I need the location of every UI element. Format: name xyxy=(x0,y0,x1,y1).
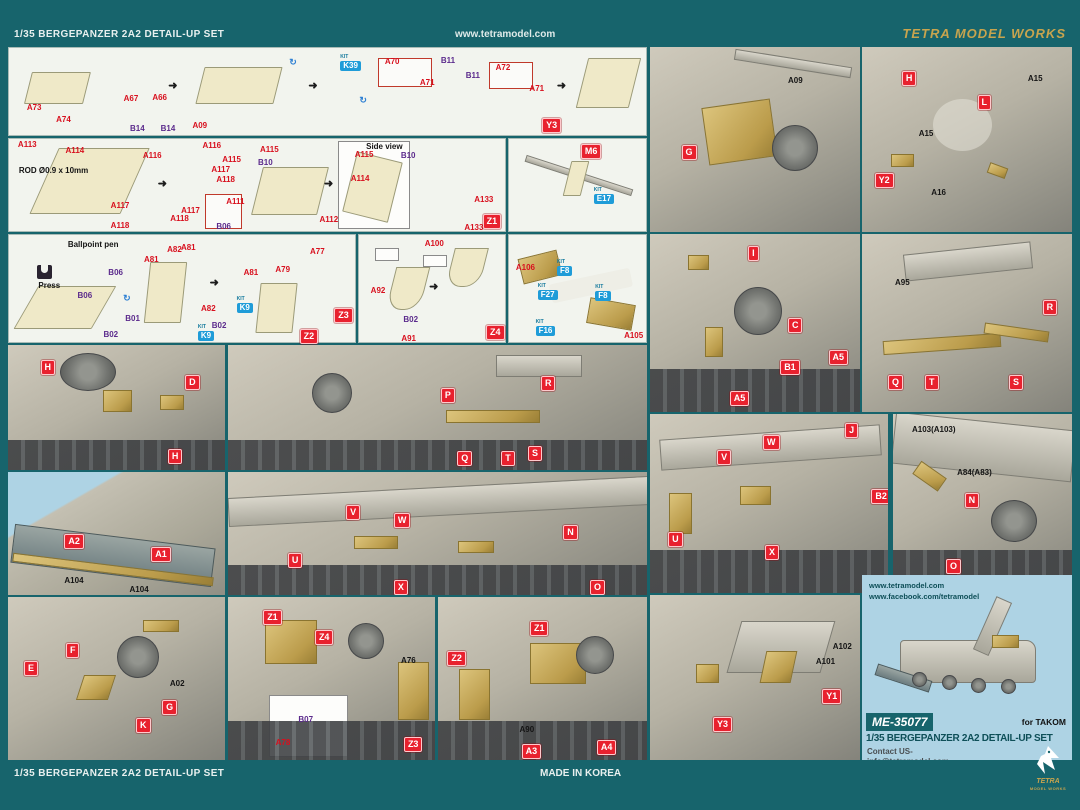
part-label-a82: A82 xyxy=(201,305,216,313)
diagram-inset-box xyxy=(375,248,399,261)
facebook-url: www.facebook.com/tetramodel xyxy=(869,591,979,602)
part-label-n: N xyxy=(563,525,578,540)
part-label-b11: B11 xyxy=(466,72,480,80)
part-label-a91: A91 xyxy=(401,335,416,343)
part-label-a71: A71 xyxy=(420,79,435,87)
etch-part-art xyxy=(354,536,398,549)
note-ballpoint-pen: Ballpoint pen xyxy=(68,241,119,249)
photo-rear-deck-brackets: A95RQTS xyxy=(862,234,1072,412)
part-label-a09: A09 xyxy=(788,77,803,85)
footer-bar: 1/35 BERGEPANZER 2A2 DETAIL-UP SET MADE … xyxy=(0,760,1080,810)
part-label-r: R xyxy=(541,376,556,391)
made-in-korea-label: MADE IN KOREA xyxy=(540,768,621,779)
part-label-a09: A09 xyxy=(192,122,207,130)
part-label-s: S xyxy=(528,446,542,461)
part-label-x: X xyxy=(765,545,779,560)
etch-part-art xyxy=(740,486,771,506)
part-label-z2: Z2 xyxy=(447,651,466,666)
etch-panel-art xyxy=(265,620,317,664)
part-label-g: G xyxy=(162,700,177,715)
part-label-a100: A100 xyxy=(425,240,444,248)
part-label-k: K xyxy=(136,718,151,733)
part-label-c: C xyxy=(788,318,803,333)
part-label-z3: Z3 xyxy=(404,737,423,752)
part-label-a117: A117 xyxy=(111,202,130,210)
part-label-a2: A2 xyxy=(64,534,84,549)
etch-part-art xyxy=(705,327,724,357)
for-takom-label: for TAKOM xyxy=(1022,717,1066,727)
part-label-y3: Y3 xyxy=(542,118,561,133)
kit-tag: KIT xyxy=(536,320,544,325)
part-label-u: U xyxy=(288,553,303,568)
part-label-a113: A113 xyxy=(18,141,37,149)
model-etch-art xyxy=(992,635,1019,648)
logo-subtext: MODEL WORKS xyxy=(1024,786,1072,791)
part-label-a3: A3 xyxy=(522,744,542,759)
crane-arm-art xyxy=(228,476,647,527)
part-label-k9: K9KIT xyxy=(198,331,214,341)
model-wheel-art xyxy=(942,675,957,690)
etch-fret-art xyxy=(587,298,637,331)
part-label-y2: Y2 xyxy=(875,173,894,188)
part-label-h: H xyxy=(902,71,917,86)
part-label-a76: A76 xyxy=(401,657,416,665)
part-label-z4: Z4 xyxy=(486,325,505,340)
photo-hull-top-detail: HLA15A15Y2A16 xyxy=(862,47,1072,232)
part-label-h: H xyxy=(41,360,56,375)
part-label-a81: A81 xyxy=(244,269,259,277)
part-label-n: N xyxy=(965,493,980,508)
kit-tag: KIT xyxy=(237,297,245,302)
photo-arm-scale-detail: A103(A103)A84(A83)NO xyxy=(893,414,1072,593)
part-label-o: O xyxy=(590,580,605,595)
part-label-b02: B02 xyxy=(103,331,118,339)
part-label-a84-a83: A84(A83) xyxy=(957,469,992,477)
part-label-w: W xyxy=(394,513,411,528)
kit-tag: KIT xyxy=(340,55,348,60)
part-label-a5: A5 xyxy=(730,391,750,406)
etch-part-art xyxy=(143,620,180,632)
footer-product-title: 1/35 BERGEPANZER 2A2 DETAIL-UP SET xyxy=(14,768,224,779)
part-label-a101: A101 xyxy=(816,658,835,666)
part-label-e17: E17KIT xyxy=(594,194,614,204)
part-label-k39: K39KIT xyxy=(340,61,361,71)
etch-box-art xyxy=(760,651,798,683)
part-label-a95: A95 xyxy=(895,279,910,287)
part-label-a02: A02 xyxy=(170,680,185,688)
part-label-p: P xyxy=(441,388,455,403)
part-label-r: R xyxy=(1043,300,1058,315)
etch-panel-art xyxy=(398,662,429,719)
instruction-sheet: 1/35 BERGEPANZER 2A2 DETAIL-UP SET www.t… xyxy=(0,0,1080,810)
diagram-part-art xyxy=(251,167,329,215)
part-label-q: Q xyxy=(888,375,903,390)
model-wheel-art xyxy=(971,678,986,693)
part-label-a71: A71 xyxy=(529,85,544,93)
part-label-a1: A1 xyxy=(151,547,171,562)
part-label-a114: A114 xyxy=(351,175,370,183)
part-label-a103-a103: A103(A103) xyxy=(912,426,956,434)
part-label-y1: Y1 xyxy=(822,689,841,704)
bend-arrow-icon: ↻ xyxy=(123,294,131,303)
part-label-b10: B10 xyxy=(258,159,273,167)
note-rod-0-9-x-10mm: ROD Ø0.9 x 10mm xyxy=(19,167,88,175)
diagram-step-ballpoint-press: ➜ ↻ Ballpoint penPressB06B06B01B02A81A82… xyxy=(8,234,356,343)
info-urls: www.tetramodel.com www.facebook.com/tetr… xyxy=(869,580,979,603)
diagram-part-art xyxy=(576,58,641,108)
etch-part-art xyxy=(987,163,1009,180)
part-label-a118: A118 xyxy=(111,222,130,230)
part-label-x: X xyxy=(394,580,408,595)
diagram-step-a92-bracket: ➜ A100A92B02A91Z4 xyxy=(358,234,506,343)
etch-part-art xyxy=(696,664,719,683)
step-arrow: ➜ xyxy=(158,179,167,190)
part-label-u: U xyxy=(668,532,683,547)
part-label-q: Q xyxy=(457,451,472,466)
step-arrow: ➜ xyxy=(324,179,333,190)
part-label-t: T xyxy=(501,451,515,466)
product-title: 1/35 BERGEPANZER 2A2 DETAIL-UP SET xyxy=(866,733,1053,744)
part-label-z1: Z1 xyxy=(263,610,282,625)
part-label-a79: A79 xyxy=(275,266,290,274)
kit-tag: KIT xyxy=(595,285,603,290)
part-label-b14: B14 xyxy=(130,125,145,133)
part-label-t: T xyxy=(925,375,939,390)
part-label-a111: A111 xyxy=(226,198,244,206)
deck-art xyxy=(496,355,582,377)
part-label-a102: A102 xyxy=(833,643,852,651)
product-info-panel: www.tetramodel.com www.facebook.com/tetr… xyxy=(862,575,1072,760)
photo-front-hull: HDH xyxy=(8,345,225,470)
part-label-a90: A90 xyxy=(520,726,535,734)
rail-art xyxy=(734,49,852,78)
model-wheel-art xyxy=(1001,679,1016,694)
part-label-b07: B07 xyxy=(298,716,313,724)
part-label-k9: K9KIT xyxy=(237,303,253,313)
photo-stowage-box: Y3Y1A102A101 xyxy=(650,595,860,760)
part-label-a66: A66 xyxy=(152,94,167,102)
step-arrow: ➜ xyxy=(308,81,317,92)
press-icon xyxy=(37,265,52,279)
part-label-z2: Z2 xyxy=(300,329,319,344)
step-arrow: ➜ xyxy=(429,282,438,293)
part-label-v: V xyxy=(346,505,360,520)
product-photo xyxy=(862,603,1072,711)
kit-tag: KIT xyxy=(538,284,546,289)
photo-crane-arm-side: VWUXNO xyxy=(228,472,647,595)
diagram-part-art xyxy=(445,248,489,287)
part-label-a70: A70 xyxy=(385,58,400,66)
part-label-a78: A78 xyxy=(276,739,291,747)
part-label-a16: A16 xyxy=(931,189,946,197)
part-label-b06: B06 xyxy=(216,223,231,231)
drum-art xyxy=(991,500,1037,542)
part-label-z1: Z1 xyxy=(483,214,502,229)
diagram-part-art xyxy=(24,72,91,104)
part-label-y3: Y3 xyxy=(713,717,732,732)
frame-art xyxy=(903,242,1033,282)
part-label-f8: F8KIT xyxy=(557,266,572,276)
part-label-a133: A133 xyxy=(474,196,493,204)
part-label-a112: A112 xyxy=(319,216,338,224)
tetra-logo: TETRA MODEL WORKS xyxy=(1024,744,1072,806)
etch-part-art xyxy=(688,255,709,269)
diagram-step-side-panels: ➜ ➜ A113ROD Ø0.9 x 10mmA114A116A116A115A… xyxy=(8,138,506,232)
part-label-b02: B02 xyxy=(212,322,227,330)
etch-rail-art xyxy=(446,410,540,423)
part-label-b06: B06 xyxy=(108,269,123,277)
part-label-a81: A81 xyxy=(181,244,196,252)
part-label-a73: A73 xyxy=(27,104,42,112)
part-label-z3: Z3 xyxy=(334,308,353,323)
photo-hull-side-tools: ICB1A5A5 xyxy=(650,234,860,412)
diagram-part-art xyxy=(255,283,297,333)
photo-engine-deck: EFKGA02 xyxy=(8,597,225,760)
part-label-b1: B1 xyxy=(780,360,800,375)
idler-art xyxy=(576,636,614,674)
part-label-j: J xyxy=(845,423,858,438)
tetra-bird-icon xyxy=(1031,744,1065,778)
part-label-a104: A104 xyxy=(64,577,83,585)
part-label-l: L xyxy=(978,95,992,110)
etch-part-art xyxy=(458,541,494,553)
header-product-title: 1/35 BERGEPANZER 2A2 DETAIL-UP SET xyxy=(14,29,224,40)
part-label-i: I xyxy=(748,246,759,261)
part-label-e: E xyxy=(24,661,38,676)
part-label-a118: A118 xyxy=(216,176,235,184)
diagram-part-art xyxy=(144,262,187,323)
part-label-b14: B14 xyxy=(161,125,176,133)
part-label-a133: A133 xyxy=(464,224,483,232)
part-label-a15: A15 xyxy=(1028,75,1043,83)
part-label-v: V xyxy=(717,450,731,465)
etch-panel-art xyxy=(459,669,490,720)
part-label-w: W xyxy=(763,435,780,450)
etch-part-art xyxy=(669,493,692,534)
etch-part-art xyxy=(160,395,184,410)
part-label-a67: A67 xyxy=(124,95,139,103)
header-bar: 1/35 BERGEPANZER 2A2 DETAIL-UP SET www.t… xyxy=(0,0,1080,46)
part-label-a115: A115 xyxy=(260,146,279,154)
brand-name: TETRA MODEL WORKS xyxy=(902,26,1066,41)
kit-tag: KIT xyxy=(557,260,565,265)
diagram-part-art xyxy=(14,286,117,329)
part-label-o: O xyxy=(946,559,961,574)
kit-tag: KIT xyxy=(198,325,206,330)
diagram-part-art xyxy=(29,148,150,214)
part-label-a106: A106 xyxy=(516,264,535,272)
etch-part-art xyxy=(891,154,914,167)
etch-cover-art xyxy=(76,675,116,700)
etch-part-art xyxy=(103,390,131,412)
idler-art xyxy=(348,623,384,659)
part-label-a115: A115 xyxy=(222,156,241,164)
diagram-step-tow-bar: ➜ ➜ ➜ ↻ ↻ A73A74A67A66B14B14A09K39KITA70… xyxy=(8,47,647,136)
kit-tag: KIT xyxy=(594,188,602,193)
part-label-z1: Z1 xyxy=(530,621,549,636)
photo-rear-plate-z-panels: Z1Z4A76B07A78Z3 xyxy=(228,597,435,760)
part-label-a116: A116 xyxy=(202,142,221,150)
part-label-b11: B11 xyxy=(441,57,455,65)
hatch-art xyxy=(117,636,159,678)
part-label-a77: A77 xyxy=(310,248,325,256)
website-url: www.tetramodel.com xyxy=(869,580,979,591)
part-label-a116: A116 xyxy=(143,152,162,160)
diagram-part-art xyxy=(386,267,431,310)
logo-text: TETRA xyxy=(1024,778,1072,786)
part-label-a74: A74 xyxy=(56,116,71,124)
part-label-a72: A72 xyxy=(496,64,511,72)
part-label-z4: Z4 xyxy=(315,630,334,645)
fan-wheel-art xyxy=(772,125,818,171)
part-label-a117: A117 xyxy=(211,166,230,174)
fan-wheel-art xyxy=(312,373,352,413)
part-label-a118: A118 xyxy=(170,215,189,223)
part-label-b06: B06 xyxy=(78,292,93,300)
etch-rail-art xyxy=(883,333,1001,356)
part-label-a92: A92 xyxy=(371,287,386,295)
diagram-part-art xyxy=(196,67,284,104)
part-label-b2: B2 xyxy=(871,489,888,504)
part-label-a114: A114 xyxy=(66,147,85,155)
diagram-inset-box xyxy=(423,255,447,267)
photo-dozer-blade: A2A1A104A104 xyxy=(8,472,225,595)
diagram-step-m6-rod: M6E17KIT xyxy=(508,138,647,232)
photo-inset-box xyxy=(269,695,348,757)
turret-ring-art xyxy=(60,353,116,391)
part-label-b01: B01 xyxy=(125,315,140,323)
part-label-a5: A5 xyxy=(829,350,849,365)
bend-arrow-icon: ↻ xyxy=(289,58,297,67)
part-label-a104: A104 xyxy=(130,586,149,594)
step-arrow: ➜ xyxy=(557,81,566,92)
contact-label: Contact US- xyxy=(867,747,949,757)
diagram-step-crane-etch: A106F8KITF27KITF8KITF16KITA105 xyxy=(508,234,647,343)
part-label-f16: F16KIT xyxy=(536,326,556,336)
part-label-d: D xyxy=(185,375,200,390)
part-label-h: H xyxy=(168,449,183,464)
part-label-a15: A15 xyxy=(919,130,934,138)
photo-rear-plate-alt: Z2Z1A90A3A4 xyxy=(438,597,647,760)
part-label-b10: B10 xyxy=(401,152,416,160)
bend-arrow-icon: ↻ xyxy=(359,96,367,105)
product-code-badge: ME-35077 xyxy=(866,713,933,731)
part-label-s: S xyxy=(1009,375,1023,390)
photo-roof-etch-plate: A09G xyxy=(650,47,860,232)
note-press: Press xyxy=(38,282,60,290)
part-label-a105: A105 xyxy=(624,332,643,340)
part-label-m6: M6 xyxy=(581,144,602,159)
step-arrow: ➜ xyxy=(168,81,177,92)
part-label-a4: A4 xyxy=(597,740,617,755)
part-label-g: G xyxy=(682,145,697,160)
header-website-url: www.tetramodel.com xyxy=(455,29,555,40)
step-arrow: ➜ xyxy=(210,278,219,289)
part-label-b02: B02 xyxy=(403,316,418,324)
part-label-f8: F8KIT xyxy=(595,291,610,301)
part-label-f27: F27KIT xyxy=(538,290,558,300)
part-label-a115: A115 xyxy=(355,151,374,159)
photo-hull-side-profile: PRQTS xyxy=(228,345,647,470)
photo-crane-linkage: JWVB2UX xyxy=(650,414,888,593)
part-label-a82: A82 xyxy=(167,246,182,254)
etch-plate-art xyxy=(701,98,778,165)
part-label-a81: A81 xyxy=(144,256,159,264)
spare-wheel-art xyxy=(734,287,782,335)
part-label-f: F xyxy=(66,643,80,658)
